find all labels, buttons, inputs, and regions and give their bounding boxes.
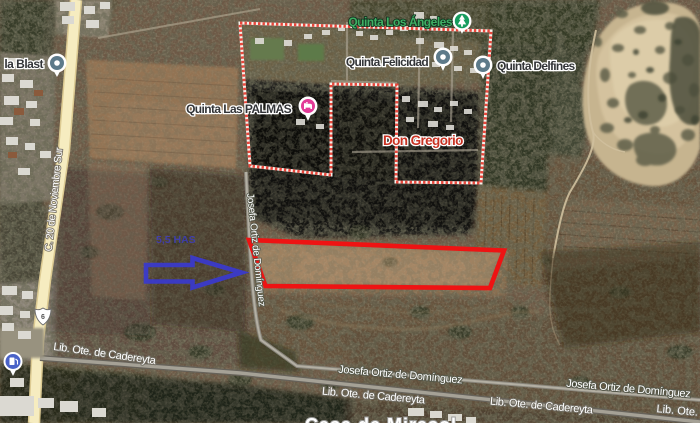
- svg-text:6: 6: [41, 314, 45, 321]
- svg-text:Quinta Los Ángeles: Quinta Los Ángeles: [348, 14, 453, 29]
- svg-text:Quinta Delfines: Quinta Delfines: [497, 59, 576, 73]
- svg-text:Casa de Mirasol: Casa de Mirasol: [305, 415, 457, 423]
- svg-text:Quinta Las PALMAS: Quinta Las PALMAS: [186, 102, 292, 116]
- svg-text:la Blast: la Blast: [4, 57, 43, 71]
- svg-text:Quinta Felicidad: Quinta Felicidad: [346, 55, 429, 69]
- svg-text:Don Gregorio: Don Gregorio: [383, 133, 463, 148]
- svg-text:5,5 HAS: 5,5 HAS: [156, 234, 196, 246]
